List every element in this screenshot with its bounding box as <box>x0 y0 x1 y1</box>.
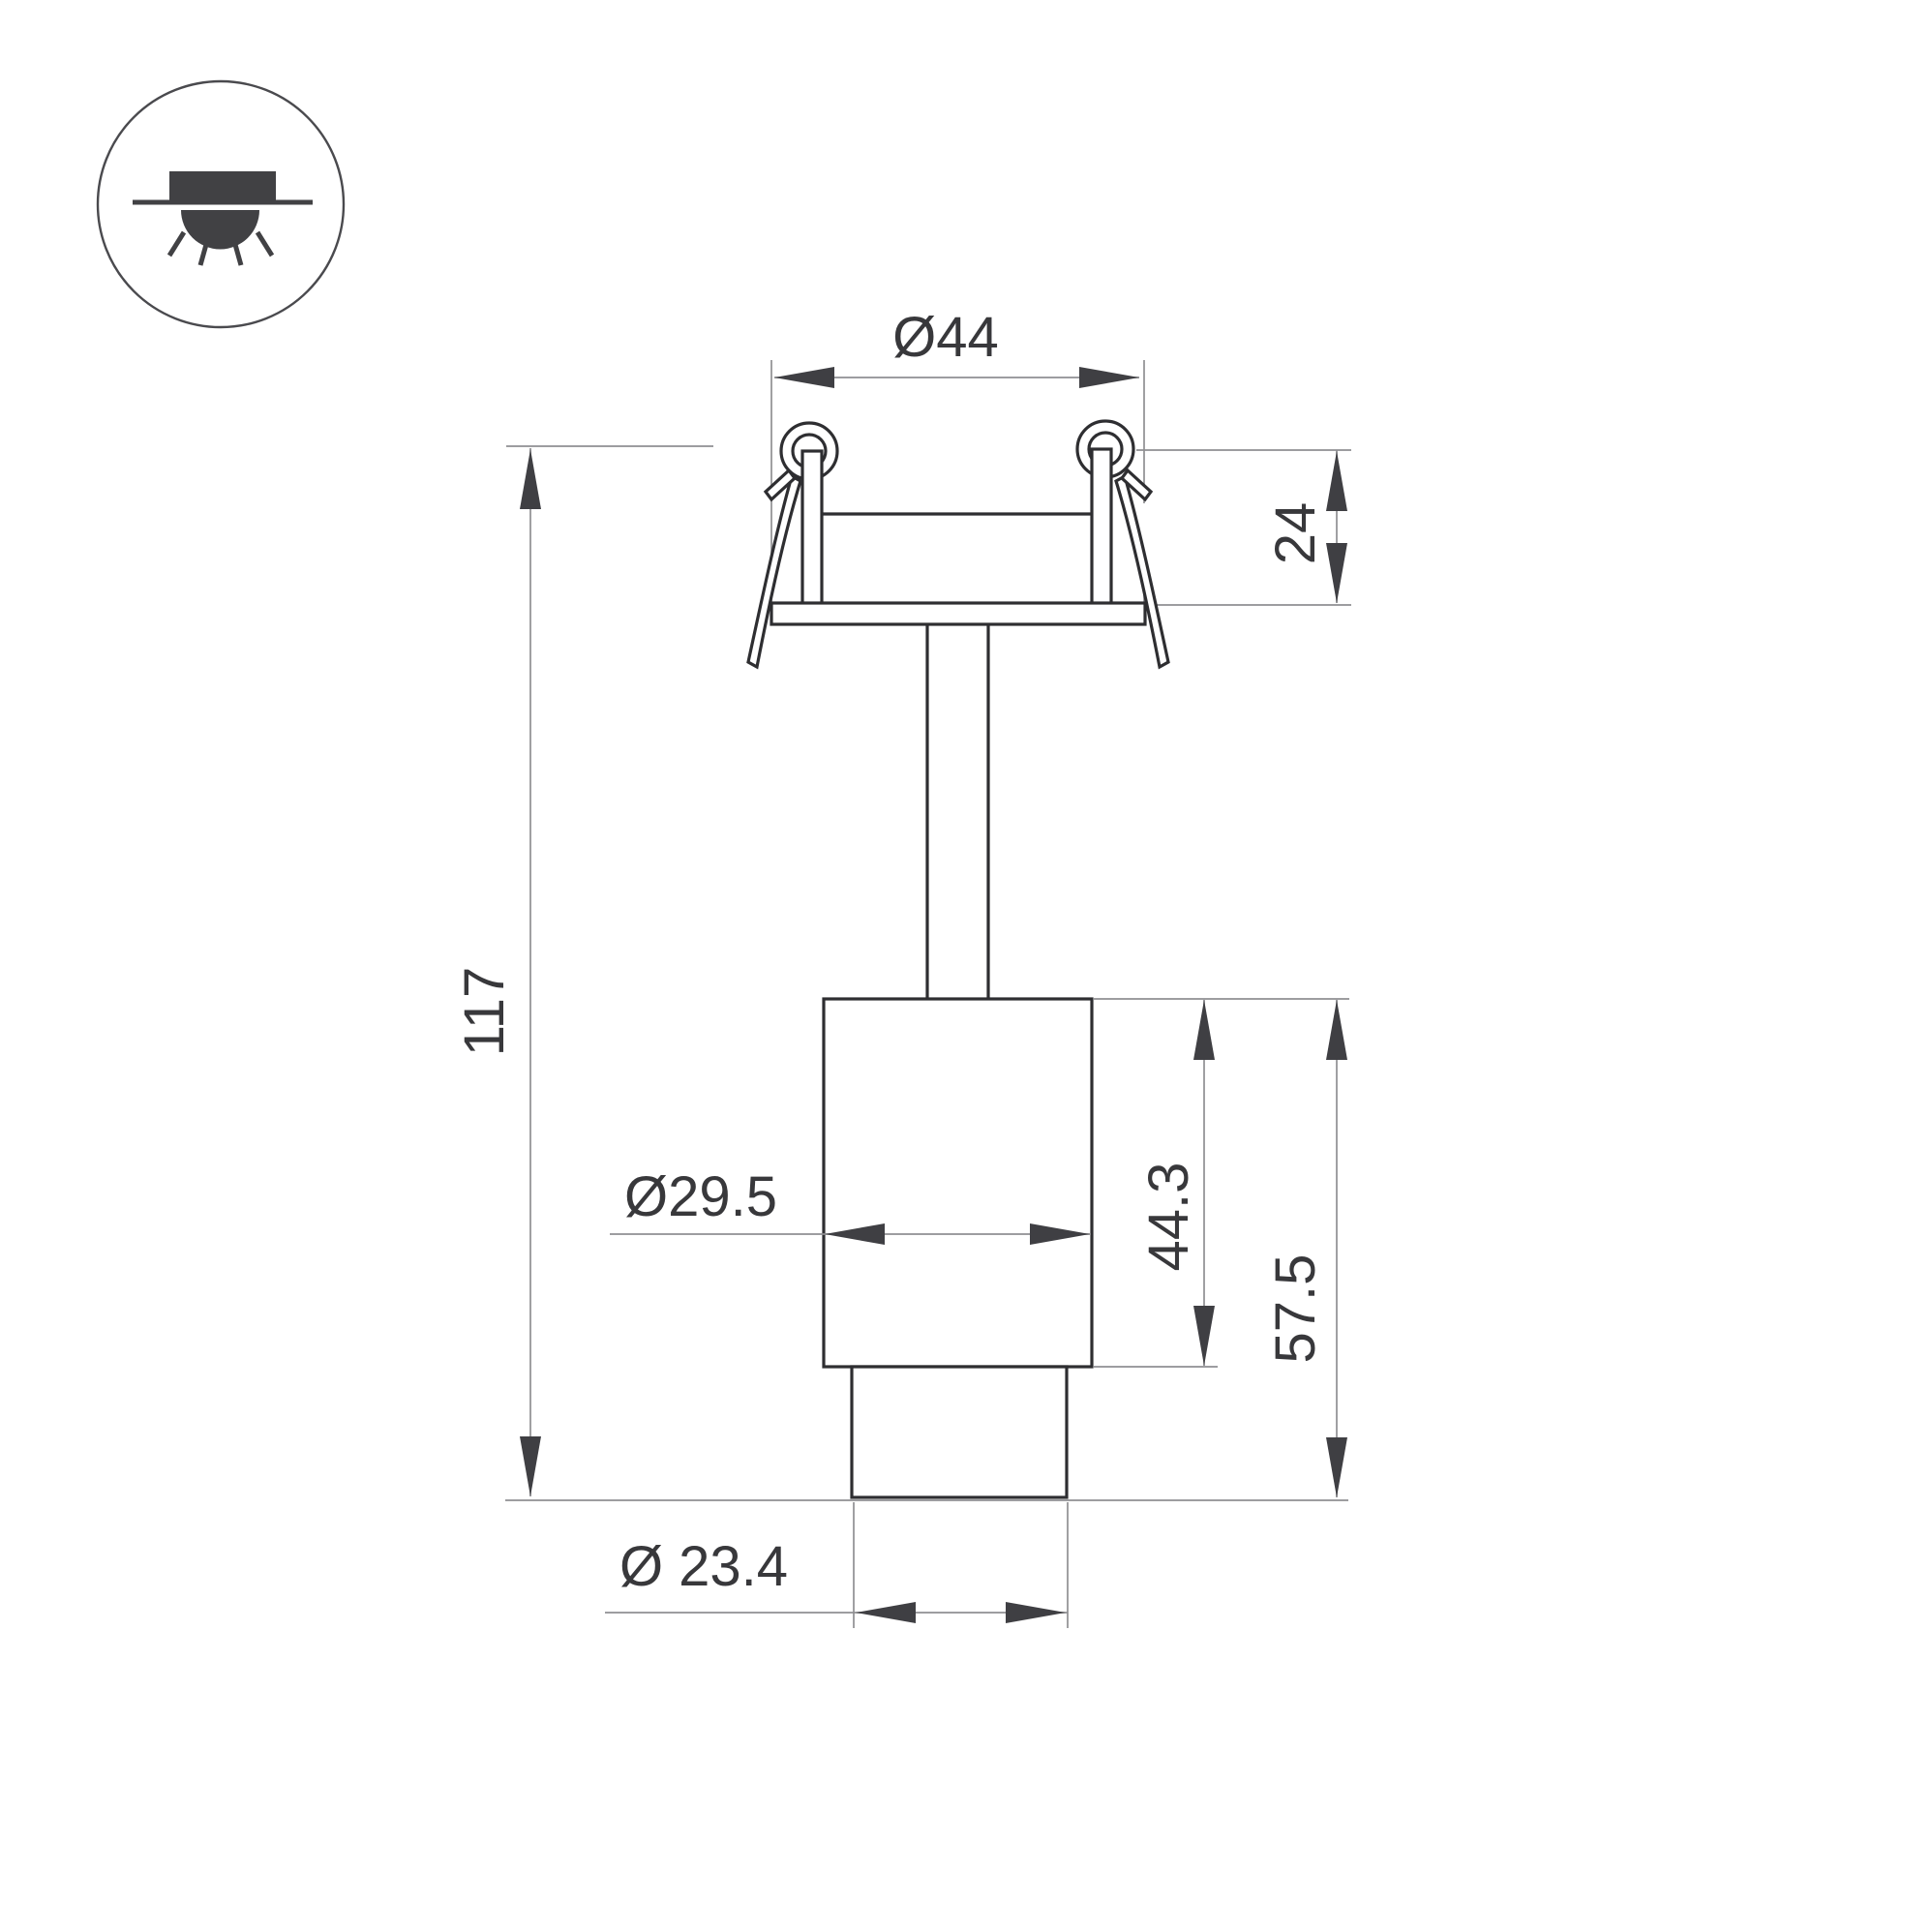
arrowhead-right <box>1006 1602 1066 1623</box>
dim-body-lens-height: 57.5 <box>1264 1000 1347 1497</box>
dim-label-overall-height: 117 <box>453 967 516 1056</box>
housing-wall-right <box>1092 449 1111 605</box>
fixture-cross-section <box>748 421 1168 1497</box>
lens-cylinder <box>852 1367 1067 1497</box>
arrowhead-up <box>1193 1000 1215 1060</box>
arrowhead-down <box>1326 543 1347 603</box>
dim-label-lens-diameter: Ø 23.4 <box>619 1535 788 1598</box>
arrowhead-down <box>520 1436 541 1496</box>
spring-clip-leg-left <box>748 476 800 667</box>
stem <box>927 619 988 1000</box>
dim-lens-diameter: Ø 23.4 <box>605 1502 1068 1628</box>
trim-flange <box>771 603 1145 624</box>
arrowhead-up <box>1326 451 1347 511</box>
arrowhead-left <box>856 1602 916 1623</box>
dim-recess-depth: 24 <box>1136 450 1351 605</box>
arrowhead-right <box>1079 367 1139 388</box>
arrowhead-down <box>1193 1306 1215 1366</box>
dim-label-flange-diameter: Ø44 <box>892 306 999 369</box>
lamp-body <box>824 999 1092 1367</box>
mount-type-icon <box>98 81 344 327</box>
dim-label-body-diameter: Ø29.5 <box>624 1165 777 1228</box>
dim-label-recess-depth: 24 <box>1264 502 1327 565</box>
technical-drawing: Ø44 24 117 44.3 57.5 <box>0 0 1932 1932</box>
arrowhead-down <box>1326 1437 1347 1497</box>
housing-wall-left <box>802 451 822 605</box>
dim-label-body-lens-height: 57.5 <box>1264 1254 1327 1364</box>
dim-label-body-height: 44.3 <box>1137 1162 1200 1272</box>
drawing-page: Ø44 24 117 44.3 57.5 <box>0 0 1932 1932</box>
icon-housing-block <box>169 171 276 201</box>
arrowhead-left <box>774 367 834 388</box>
arrowhead-up <box>1326 1000 1347 1060</box>
arrowhead-up <box>520 449 541 509</box>
icon-lamp-dome <box>181 210 259 250</box>
spring-clip-leg-right <box>1116 476 1168 667</box>
